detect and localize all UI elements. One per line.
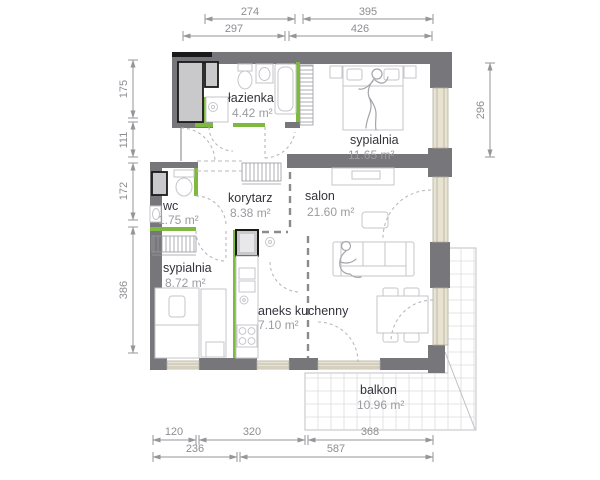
- svg-text:172: 172: [118, 182, 130, 200]
- room-label-wc: wc 1.75 m²: [158, 199, 199, 227]
- salon-window-arc: [383, 190, 431, 238]
- room-label-korytarz: korytarz 8.38 m²: [228, 191, 272, 220]
- svg-text:balkon: balkon: [360, 383, 397, 397]
- svg-text:8.72 m²: 8.72 m²: [165, 276, 206, 290]
- toilet-wc: [174, 170, 194, 196]
- bathroom-door-arc: [209, 127, 233, 151]
- floor-plan: łazienka 4.42 m² sypialnia 11.65 m² wc 1…: [0, 0, 600, 480]
- sofa: [333, 242, 414, 276]
- svg-text:10.96 m²: 10.96 m²: [357, 398, 404, 412]
- kitchen-passage-arc: [270, 262, 300, 292]
- wardrobe-bedroom1: [300, 65, 313, 125]
- svg-text:386: 386: [118, 281, 130, 299]
- bedroom2-door-arc: [196, 231, 226, 261]
- wardrobe-hallway: [242, 163, 281, 184]
- wc-door-arc: [196, 196, 226, 226]
- svg-text:8.38 m²: 8.38 m²: [230, 206, 271, 220]
- svg-text:4.42 m²: 4.42 m²: [232, 106, 273, 120]
- room-label-sypialnia-1: sypialnia 11.65 m²: [348, 133, 399, 162]
- room-label-lazienka: łazienka 4.42 m²: [228, 91, 274, 120]
- window-bedroom1-right: [433, 88, 448, 148]
- balcony-door-arc: [318, 322, 358, 362]
- bed-bedroom2: [155, 288, 199, 358]
- svg-text:korytarz: korytarz: [228, 191, 272, 205]
- svg-text:7.10 m²: 7.10 m²: [258, 318, 299, 332]
- svg-text:320: 320: [243, 426, 261, 438]
- svg-text:1.75 m²: 1.75 m²: [158, 213, 199, 227]
- shared-wall-black-segment: [172, 52, 212, 57]
- dimension-left-column: [128, 60, 138, 353]
- svg-text:274: 274: [241, 6, 259, 18]
- window-salon-right: [433, 177, 448, 242]
- cooker-hood-icon: [266, 238, 275, 247]
- bathtub: [275, 64, 296, 114]
- svg-text:120: 120: [165, 426, 183, 438]
- room-label-aneks: aneks kuchenny 7.10 m²: [258, 304, 349, 332]
- room-label-sypialnia-2: sypialnia 8.72 m²: [163, 261, 212, 290]
- washbasin-bathroom: [256, 64, 273, 83]
- dimension-top-row2: [183, 31, 432, 41]
- shaft-wc: [152, 172, 167, 195]
- bed-bedroom1: [330, 66, 416, 130]
- wardrobe-bedroom2: [152, 236, 196, 255]
- window-bedroom2-bottom: [167, 361, 199, 369]
- svg-text:175: 175: [118, 80, 130, 98]
- shaft-bathroom-large: [178, 62, 203, 122]
- desk-bedroom2: [201, 289, 226, 357]
- window-kitchen-bottom: [257, 361, 289, 369]
- window-salon-right-lower: [433, 288, 448, 345]
- shaft-bathroom-small: [205, 62, 218, 87]
- balcony-door-bottom: [318, 361, 380, 369]
- svg-text:236: 236: [186, 443, 204, 455]
- floor-plan-page: łazienka 4.42 m² sypialnia 11.65 m² wc 1…: [0, 0, 600, 480]
- room-label-salon: salon 21.60 m²: [305, 189, 354, 219]
- svg-text:salon: salon: [305, 189, 335, 203]
- toilet-bathroom: [238, 64, 252, 89]
- stove: [237, 325, 257, 347]
- svg-text:368: 368: [361, 426, 379, 438]
- dining-table: [377, 288, 428, 342]
- svg-text:111: 111: [118, 132, 130, 149]
- svg-text:21.60 m²: 21.60 m²: [307, 205, 354, 219]
- svg-text:łazienka: łazienka: [228, 91, 274, 105]
- svg-text:sypialnia: sypialnia: [163, 261, 212, 275]
- svg-text:aneks kuchenny: aneks kuchenny: [258, 304, 349, 318]
- washing-machine: [206, 97, 228, 122]
- svg-text:587: 587: [327, 443, 345, 455]
- svg-text:395: 395: [359, 6, 377, 18]
- fridge: [236, 230, 258, 256]
- tv-sideboard: [332, 168, 394, 185]
- svg-text:sypialnia: sypialnia: [350, 133, 399, 147]
- svg-text:297: 297: [225, 23, 243, 35]
- svg-text:11.65 m²: 11.65 m²: [348, 148, 394, 162]
- svg-text:wc: wc: [162, 199, 178, 213]
- svg-text:426: 426: [351, 23, 369, 35]
- svg-text:296: 296: [475, 101, 487, 119]
